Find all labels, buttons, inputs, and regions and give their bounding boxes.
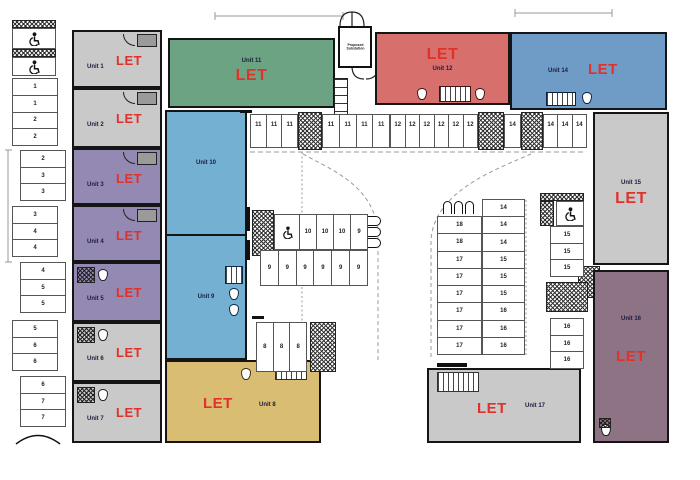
unit-label: Unit 12	[377, 66, 508, 72]
wall-segment	[240, 110, 252, 113]
unit-label: Unit 10	[167, 160, 245, 166]
cycle-stand-icon	[454, 201, 463, 214]
unit-3[interactable]: Unit 3 LET	[72, 148, 162, 205]
unit-4[interactable]: Unit 4 LET	[72, 205, 162, 262]
parking-stall: 16	[483, 321, 524, 338]
hatched-verge	[540, 201, 554, 226]
parking-stall: 15	[551, 260, 583, 276]
hatched-pillar	[478, 112, 504, 150]
cycle-stand-icon	[465, 201, 474, 214]
hatched-verge	[12, 20, 56, 28]
parking-stall: 14	[483, 234, 524, 251]
parking-group: 18 18 17 17 17 17 17 17	[437, 216, 482, 355]
parking-stall: 1	[13, 96, 57, 113]
parking-stall: 14	[573, 115, 586, 147]
parking-stall: 8	[257, 323, 274, 371]
let-status: LET	[377, 46, 508, 64]
parking-stall: 3	[21, 168, 65, 185]
unit-label: Unit 8	[259, 402, 276, 408]
parking-stall: 12	[449, 115, 464, 147]
parking-stall: 12	[420, 115, 435, 147]
proposed-substation: ProposedSubstation	[338, 26, 372, 68]
parking-group: 9 9 9 9 9 9	[260, 250, 368, 286]
wall-segment	[437, 363, 467, 367]
parking-stall: 4	[13, 224, 57, 241]
parking-stall: 15	[551, 244, 583, 261]
parking-stall: 14	[544, 115, 558, 147]
let-status: LET	[588, 61, 618, 78]
wc-partition	[225, 266, 243, 284]
unit-17[interactable]: LET Unit 17	[427, 368, 581, 443]
parking-stall: 2	[13, 113, 57, 130]
parking-group: 2 3 3	[20, 150, 66, 201]
parking-stall: 12	[406, 115, 421, 147]
let-status: LET	[116, 111, 142, 126]
wc-hatch	[599, 418, 611, 428]
cycle-stand-icon	[443, 201, 452, 214]
parking-stall: 6	[21, 377, 65, 394]
parking-stall: 8	[290, 323, 306, 371]
parking-group: 1 1 2 2	[12, 78, 58, 146]
parking-stall: 14	[483, 200, 524, 217]
parking-stall: 1	[13, 79, 57, 96]
parking-group: 11 11 11 11	[322, 114, 390, 148]
parking-stall: 17	[438, 338, 481, 354]
unit-label: Unit 17	[525, 403, 545, 409]
disabled-parking-icon	[564, 207, 576, 221]
wc-hatch	[77, 267, 95, 283]
wc-partition	[439, 86, 471, 102]
cycle-stands	[368, 216, 381, 248]
parking-stall: 16	[551, 336, 583, 353]
porch	[137, 92, 157, 105]
unit-label: Unit 14	[548, 68, 568, 74]
unit-14[interactable]: Unit 14 LET	[510, 32, 667, 110]
parking-group: 8 8 8	[256, 322, 307, 372]
parking-stall: 6	[13, 338, 57, 355]
let-status: LET	[116, 53, 142, 68]
toilet-icon	[98, 389, 108, 401]
parking-stall: 11	[323, 115, 340, 147]
parking-stall: 17	[438, 269, 481, 286]
parking-stall: 12	[464, 115, 478, 147]
unit-label: Unit 5	[87, 296, 104, 302]
porch	[137, 152, 157, 165]
unit-1[interactable]: Unit 1 LET	[72, 30, 162, 88]
let-status: LET	[116, 228, 142, 243]
parking-stall: 3	[13, 207, 57, 224]
unit-5[interactable]: Unit 5 LET	[72, 262, 162, 322]
parking-stall: 5	[21, 296, 65, 312]
unit-15[interactable]: Unit 15 LET	[593, 112, 669, 265]
parking-stall: 15	[483, 286, 524, 303]
parking-stall: 2	[13, 129, 57, 145]
wc-hatch	[77, 327, 95, 343]
disabled-parking-bay	[556, 201, 584, 226]
parking-group: 15 15 15	[550, 226, 584, 277]
parking-stall: 16	[483, 303, 524, 320]
parking-stall: 10	[300, 215, 317, 249]
unit-6[interactable]: Unit 6 LET	[72, 322, 162, 382]
parking-stall: 16	[551, 319, 583, 336]
unit-label: Unit 16	[595, 316, 667, 322]
toilet-icon	[582, 92, 592, 104]
floor-plan: 1 1 2 2 2 3 3 3 4 4 4 5 5 5 6 6 6 7 7 Un…	[0, 0, 700, 480]
parking-stall: 15	[483, 252, 524, 269]
parking-stall: 16	[483, 338, 524, 354]
parking-stall: 4	[21, 263, 65, 280]
unit-label: Unit 11	[170, 58, 333, 64]
parking-group: 5 6 6	[12, 320, 58, 371]
parking-stall: 9	[261, 251, 279, 285]
unit-8[interactable]: LET Unit 8	[165, 360, 321, 443]
parking-stall: 11	[267, 115, 283, 147]
cycle-stand-icon	[368, 227, 381, 237]
parking-stall: 18	[438, 234, 481, 251]
disabled-parking-icon	[282, 226, 293, 239]
parking-group: 4 5 5	[20, 262, 66, 313]
parking-group: 12 12 12 12 12 12	[390, 114, 478, 148]
parking-stall: 2	[21, 151, 65, 168]
parking-stall: 9	[332, 251, 350, 285]
stairs	[437, 372, 479, 392]
wall-segment	[245, 207, 250, 231]
parking-stall: 14	[483, 217, 524, 234]
cycle-stand-icon	[368, 238, 381, 248]
parking-stall: 11	[357, 115, 374, 147]
entrance-canopy	[16, 436, 60, 445]
unit-16[interactable]: Unit 16 LET	[593, 270, 669, 443]
toilet-icon	[229, 304, 239, 316]
hatched-verge	[12, 49, 56, 57]
parking-group: 14	[504, 114, 521, 148]
parking-stall: 9	[279, 251, 297, 285]
unit-label: Unit 15	[595, 180, 667, 186]
parking-stall: 15	[551, 227, 583, 244]
unit-9[interactable]: Unit 9	[165, 234, 247, 360]
parking-stall: 8	[274, 323, 291, 371]
wc-hatch	[77, 387, 95, 403]
disabled-parking-bay	[12, 28, 56, 49]
porch	[137, 209, 157, 222]
parking-group: 3 4 4	[12, 206, 58, 257]
porch	[137, 34, 157, 47]
hatched-verge	[540, 193, 584, 201]
parking-stall: 15	[483, 269, 524, 286]
parking-group: 11 11 11	[250, 114, 298, 148]
let-status: LET	[116, 345, 142, 360]
parking-stall: 17	[438, 321, 481, 338]
parking-stall: 10	[317, 215, 334, 249]
toilet-icon	[98, 329, 108, 341]
cycle-stand-icon	[368, 216, 381, 226]
parking-stall: 17	[438, 303, 481, 320]
parking-stall: 12	[435, 115, 450, 147]
let-status: LET	[116, 405, 142, 420]
parking-stall: 17	[438, 286, 481, 303]
parking-stall: 9	[351, 215, 367, 249]
hatched-pillar	[298, 112, 322, 150]
parking-stall: 16	[551, 352, 583, 368]
disabled-parking-icon	[28, 60, 40, 74]
toilet-icon	[241, 368, 251, 380]
unit-label: Unit 3	[87, 182, 104, 188]
parking-stall: 17	[438, 252, 481, 269]
toilet-icon	[417, 88, 427, 100]
unit-label: Unit 1	[87, 64, 104, 70]
let-status: LET	[595, 348, 667, 365]
parking-stall: 3	[21, 184, 65, 200]
parking-stall: 11	[373, 115, 389, 147]
parking-stall: 9	[314, 251, 332, 285]
unit-label: Unit 7	[87, 416, 104, 422]
parking-stall: 11	[340, 115, 357, 147]
wc-partition	[546, 92, 576, 106]
let-status: LET	[477, 400, 507, 417]
unit-10[interactable]: Unit 10	[165, 110, 247, 236]
parking-stall: 9	[297, 251, 315, 285]
wall-segment	[245, 240, 250, 260]
door-swing-icon	[123, 92, 135, 104]
door-swing-icon	[123, 209, 135, 221]
parking-stall: 4	[13, 240, 57, 256]
hatched-verge	[546, 282, 588, 312]
unit-2[interactable]: Unit 2 LET	[72, 88, 162, 148]
parking-group: 14 14 14 15 15 15 16 16 16	[482, 199, 525, 355]
parking-stall: 9	[350, 251, 367, 285]
let-status: LET	[170, 67, 333, 85]
let-status: LET	[203, 395, 233, 412]
cycle-stands	[443, 201, 474, 214]
parking-group: 14 14 14	[543, 114, 587, 148]
wall-segment	[252, 316, 264, 319]
parking-stall: 11	[251, 115, 267, 147]
disabled-parking-bay	[12, 57, 56, 76]
cycle-rack	[334, 78, 348, 116]
hatched-verge	[310, 322, 336, 372]
let-status: LET	[116, 171, 142, 186]
unit-7[interactable]: Unit 7 LET	[72, 382, 162, 443]
parking-stall: 5	[13, 321, 57, 338]
disabled-parking-bay	[275, 215, 300, 249]
unit-label: Unit 6	[87, 356, 104, 362]
door-swing-icon	[123, 34, 135, 46]
parking-stall: 11	[282, 115, 297, 147]
parking-group: 16 16 16	[550, 318, 584, 369]
substation-label-line2: Substation	[346, 47, 364, 50]
parking-stall: 5	[21, 280, 65, 297]
toilet-icon	[98, 269, 108, 281]
disabled-parking-icon	[28, 32, 40, 46]
unit-label: Unit 2	[87, 122, 104, 128]
parking-stall: 7	[21, 394, 65, 411]
hatched-pillar	[521, 112, 543, 150]
parking-stall: 6	[13, 354, 57, 370]
unit-label: Unit 4	[87, 239, 104, 245]
parking-group: 6 7 7	[20, 376, 66, 427]
door-swing-icon	[123, 152, 135, 164]
toilet-icon	[475, 88, 485, 100]
let-status: LET	[116, 285, 142, 300]
let-status: LET	[595, 190, 667, 208]
unit-12[interactable]: LET Unit 12	[375, 32, 510, 105]
parking-stall: 18	[438, 217, 481, 234]
unit-11[interactable]: Unit 11 LET	[168, 38, 335, 108]
parking-stall: 7	[21, 410, 65, 426]
parking-group: 10 10 10 9	[274, 214, 368, 250]
parking-stall: 10	[334, 215, 351, 249]
parking-stall: 12	[391, 115, 406, 147]
parking-stall: 14	[505, 115, 520, 147]
parking-stall: 14	[558, 115, 572, 147]
